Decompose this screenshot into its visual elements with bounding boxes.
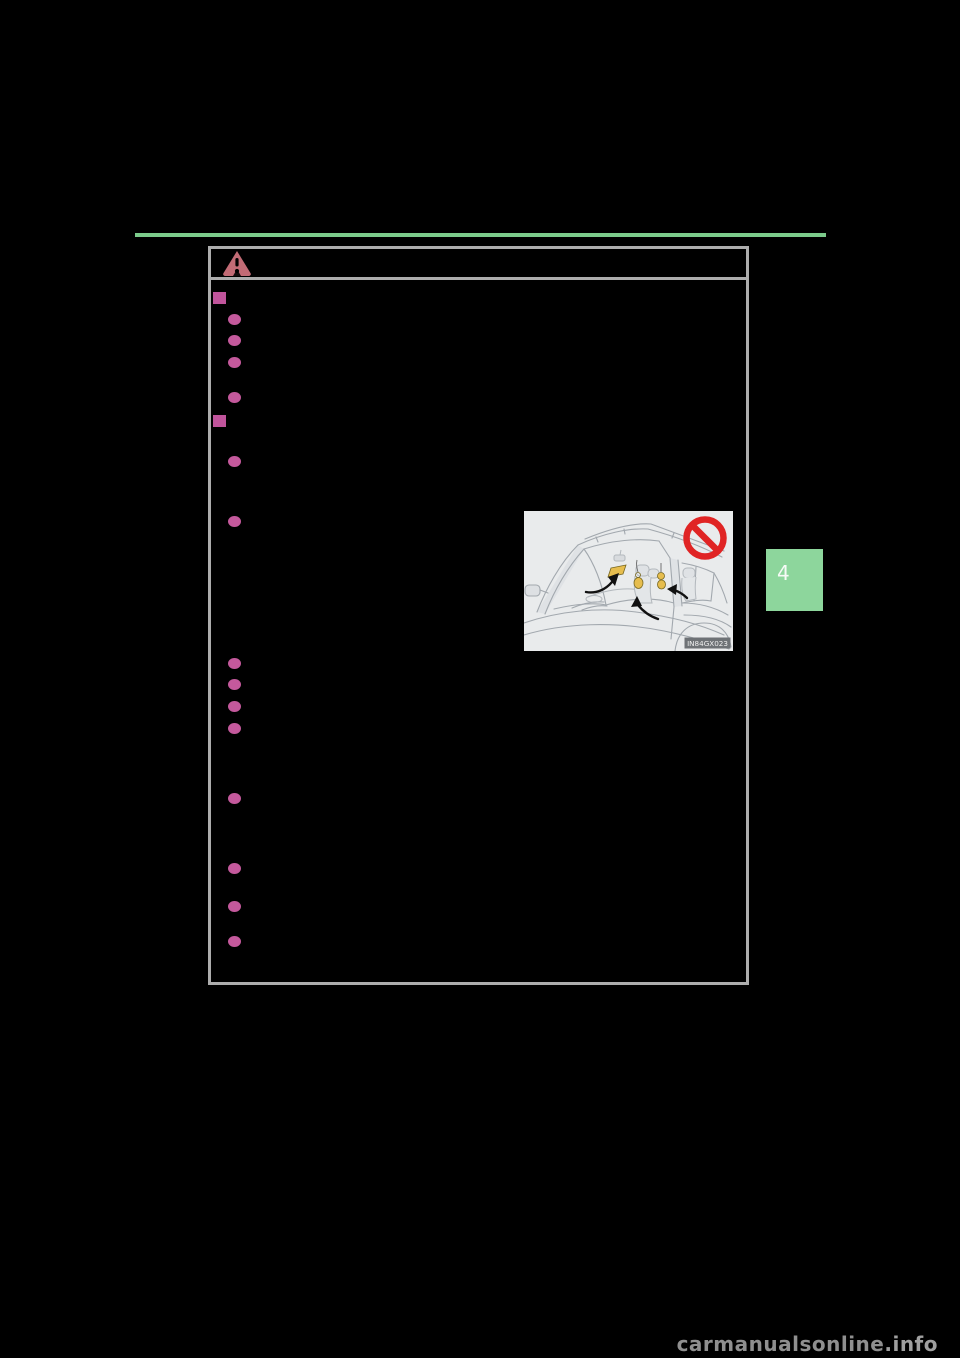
watermark-text: carmanualsonline.info [677, 1332, 938, 1356]
circle-bullet [228, 392, 241, 403]
square-marker [213, 292, 226, 304]
watermark-tld: .info [884, 1332, 938, 1356]
circle-bullet [228, 456, 241, 467]
watermark-site: carmanualsonline [677, 1332, 885, 1356]
caution-body: IN84GX023 [211, 280, 746, 979]
circle-bullet [228, 723, 241, 734]
circle-bullet [228, 314, 241, 325]
circle-bullet [228, 516, 241, 527]
circle-bullet [228, 901, 241, 912]
circle-bullet [228, 936, 241, 947]
figure-code-label: IN84GX023 [685, 638, 731, 649]
warning-triangle-icon [222, 250, 252, 276]
circle-bullet [228, 335, 241, 346]
caution-box: IN84GX023 [208, 246, 749, 985]
circle-bullet [228, 658, 241, 669]
manual-page: IN84GX023 4 carmanualsonline.info [0, 0, 960, 1358]
chapter-number: 4 [777, 563, 790, 583]
circle-bullet [228, 793, 241, 804]
figure-code-text: IN84GX023 [687, 639, 728, 648]
square-marker [213, 415, 226, 427]
caution-header [211, 249, 746, 280]
circle-bullet [228, 357, 241, 368]
car-interior-figure: IN84GX023 [524, 511, 733, 651]
circle-bullet [228, 701, 241, 712]
chapter-tab: 4 [766, 549, 823, 611]
circle-bullet [228, 863, 241, 874]
circle-bullet [228, 679, 241, 690]
section-divider-rule [135, 233, 826, 237]
